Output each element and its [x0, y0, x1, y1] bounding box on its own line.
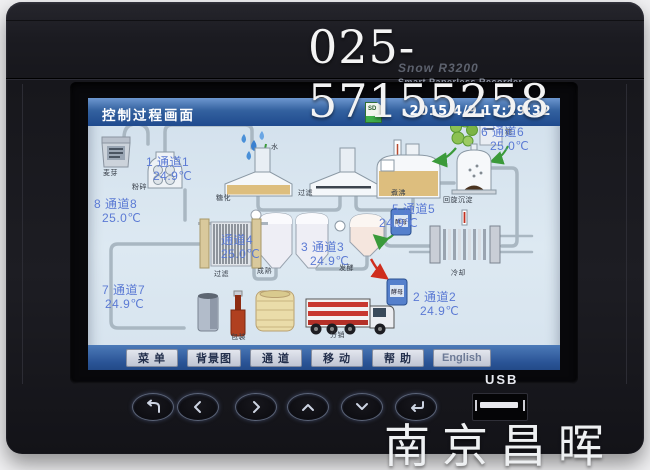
- label-water: 水: [271, 142, 279, 152]
- yeast-canister-out: 酵母: [387, 279, 407, 305]
- photo-stage: Snow R3200 Smart Paperless Recorder: [0, 0, 650, 470]
- lcd-touchscreen: 酵母 酵母: [88, 98, 560, 370]
- channel-1-readout: 1 通道124.9℃: [146, 155, 192, 183]
- label-boil: 煮沸: [391, 188, 406, 198]
- left-key[interactable]: [177, 393, 219, 421]
- usb-label: USB: [485, 372, 518, 387]
- menu-button[interactable]: 菜 单: [126, 349, 178, 367]
- english-button[interactable]: English: [433, 349, 491, 367]
- down-key[interactable]: [341, 393, 383, 421]
- up-arrow-icon: [296, 399, 320, 415]
- heat-exchanger: [430, 210, 500, 263]
- back-icon: [141, 399, 165, 415]
- channel-2-readout: 2 通道224.9℃: [413, 290, 459, 318]
- channel-8-readout: 8 通道825.0℃: [94, 197, 141, 225]
- phone-number-watermark: 025-57155258: [308, 20, 650, 128]
- label-distribute: 分销: [330, 330, 345, 340]
- back-key[interactable]: [132, 393, 174, 421]
- beer-can: [198, 293, 218, 331]
- channel-button[interactable]: 通 道: [250, 349, 302, 367]
- left-arrow-icon: [186, 399, 210, 415]
- right-arrow-icon: [244, 399, 268, 415]
- malt-bag: [102, 137, 130, 167]
- right-key[interactable]: [235, 393, 277, 421]
- page-title: 控制过程画面: [102, 104, 195, 124]
- channel-4-readout: 通道425.0℃: [221, 233, 260, 261]
- channel-6-readout: 6 通道625.0℃: [481, 125, 529, 153]
- channel-7-readout: 7 通道724.9℃: [102, 283, 145, 311]
- usb-port-contact: [480, 402, 518, 408]
- boil-kettle: [377, 140, 440, 198]
- label-whirlpool: 回旋沉淀: [443, 195, 473, 205]
- label-mature: 成熟: [257, 266, 272, 276]
- up-key[interactable]: [287, 393, 329, 421]
- label-package: 包装: [231, 332, 246, 342]
- label-lauter: 过滤: [298, 188, 313, 198]
- mash-tun: [225, 148, 292, 196]
- vendor-watermark: 南京昌晖: [384, 410, 616, 470]
- down-arrow-icon: [350, 399, 374, 415]
- svg-text:酵母: 酵母: [391, 288, 403, 296]
- beer-bottle: [231, 291, 245, 336]
- label-mill: 粉碎: [132, 182, 147, 192]
- label-filter-press: 过滤: [214, 269, 229, 279]
- help-button[interactable]: 帮 助: [372, 349, 424, 367]
- channel-5-readout: 5 通道524.9℃: [379, 202, 435, 230]
- background-button[interactable]: 背景图: [187, 349, 241, 367]
- bezel-seam-left: [22, 84, 23, 384]
- move-button[interactable]: 移 动: [311, 349, 363, 367]
- label-malt: 麦芽: [103, 168, 118, 178]
- beer-keg: [256, 291, 294, 332]
- channel-3-readout: 3 通道324.9℃: [301, 240, 349, 268]
- label-cool: 冷却: [451, 268, 466, 278]
- delivery-truck: [306, 299, 394, 335]
- lauter-tun: [310, 148, 377, 196]
- label-mash: 糖化: [216, 193, 231, 203]
- menu-bar: 菜 单 背景图 通 道 移 动 帮 助 English: [88, 345, 560, 370]
- bezel-seam-right: [626, 84, 627, 384]
